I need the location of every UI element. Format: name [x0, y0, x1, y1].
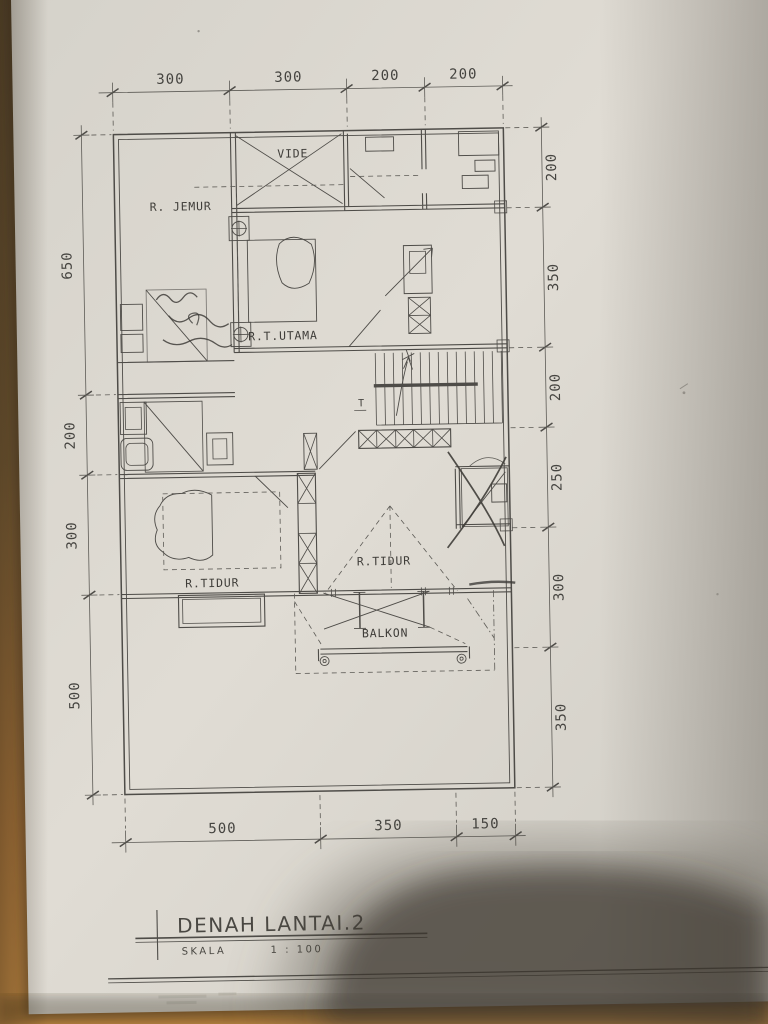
- photo-shadows: [0, 0, 768, 1024]
- photo-of-floor-plan: 300 300 200 200 500 350 150 650 200 300 …: [0, 0, 768, 1024]
- floor-plan-photo: 300 300 200 200 500 350 150 650 200 300 …: [0, 0, 768, 1024]
